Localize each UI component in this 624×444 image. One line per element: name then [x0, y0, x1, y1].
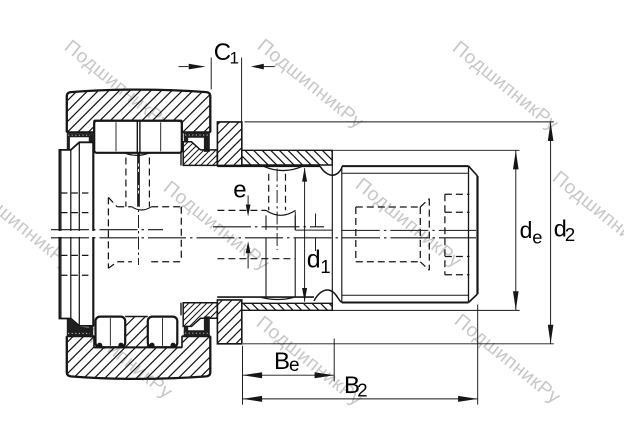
svg-text:d: d — [307, 245, 321, 273]
svg-text:e: e — [289, 355, 300, 376]
svg-text:2: 2 — [565, 224, 575, 245]
svg-text:1: 1 — [230, 48, 239, 67]
svg-text:2: 2 — [357, 380, 367, 401]
svg-text:e: e — [233, 176, 246, 203]
svg-text:d: d — [520, 217, 533, 243]
svg-text:B: B — [274, 348, 290, 375]
svg-text:e: e — [532, 228, 542, 248]
svg-text:1: 1 — [320, 256, 330, 277]
